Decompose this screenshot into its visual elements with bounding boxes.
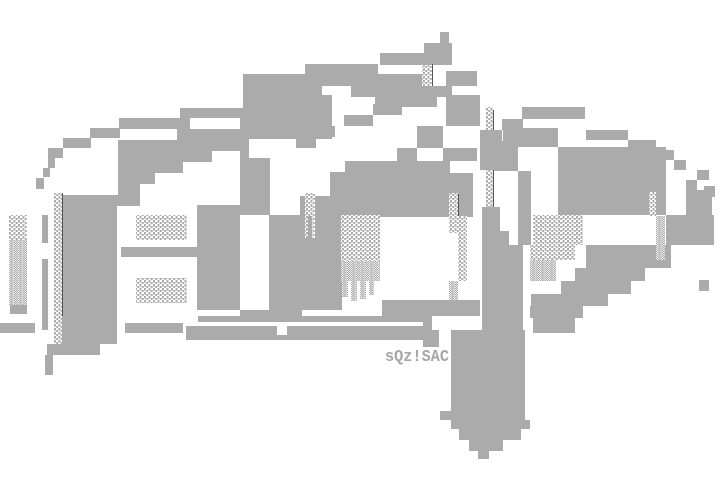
svg-text:sQz!SAC: sQz!SAC: [385, 348, 449, 367]
